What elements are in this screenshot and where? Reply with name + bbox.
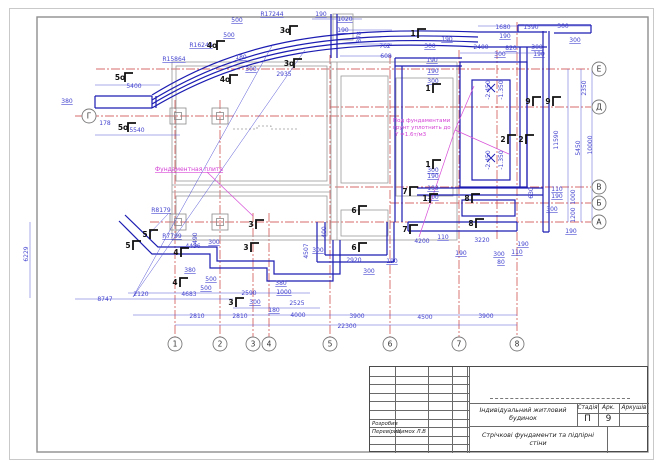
dimension-text: 300 <box>546 206 558 213</box>
section-mark-label: 2 <box>500 135 505 144</box>
dimension-text: 190 <box>427 68 439 75</box>
axis-bubble-label: 4 <box>267 340 272 349</box>
section-mark-label: 6 <box>351 206 356 215</box>
section-mark-flag <box>150 230 158 239</box>
dimension-text: 300 <box>312 247 324 254</box>
section-mark-flag <box>410 225 418 234</box>
section-mark-label: 3о <box>284 59 294 68</box>
dimension-text: 300 <box>531 44 543 51</box>
dimension-text: 300 <box>557 23 569 30</box>
axis-bubble-label: В <box>596 183 601 192</box>
dimension-text: 178 <box>99 120 111 127</box>
section-mark-label: 5о <box>118 123 128 132</box>
axis-bubble-label: 2 <box>218 340 223 349</box>
dimension-text: 190 <box>551 193 563 200</box>
axis-bubble-label: 3 <box>251 340 256 349</box>
dimension-text: 11590 <box>553 130 560 149</box>
dimension-text: 300 <box>494 51 506 58</box>
dimension-text: 300 <box>493 251 505 258</box>
dimension-text: -1.350 <box>498 80 505 100</box>
dimension-text: 190 <box>533 51 545 58</box>
section-mark-flag <box>553 97 561 106</box>
dimension-text: 110 <box>437 234 449 241</box>
dimension-text: R8179 <box>151 207 171 214</box>
dimension-text: 300 <box>245 66 257 73</box>
section-mark-label: 5 <box>125 241 130 250</box>
title-block: Розробив Перевірив Цимох Л.В Індивідуаль… <box>369 366 648 452</box>
soil-note-line1: Под фундаментами <box>393 118 451 124</box>
dimension-text: 2120 <box>133 291 148 298</box>
section-mark-label: 1 <box>425 160 430 169</box>
section-mark-label: 4 <box>173 248 178 257</box>
sheets-header: Аркушів <box>619 403 649 413</box>
section-mark-flag <box>290 26 298 35</box>
dimension-text: 380 <box>275 280 287 287</box>
section-mark-flag <box>433 84 441 93</box>
doc-title-line1: Стрічкові фундаменти та підпірні <box>482 432 594 439</box>
dimension-text: 190 <box>499 33 511 40</box>
stage-header: Стадія <box>577 403 598 413</box>
dimension-text: 22300 <box>337 323 356 330</box>
axis-bubble-label: Е <box>597 65 602 74</box>
dimension-text: 1200 <box>570 207 577 222</box>
section-mark-label: 3 <box>248 220 253 229</box>
section-mark-flag <box>359 243 367 252</box>
sheets-value <box>619 413 649 426</box>
dimension-text: 4436 <box>185 243 200 250</box>
dimension-text: 380 <box>184 267 196 274</box>
dimension-text: -2.450 <box>485 150 492 170</box>
axis-bubble-label: Б <box>596 199 601 208</box>
section-mark-flag <box>180 278 188 287</box>
section-mark-flag <box>410 187 418 196</box>
dimension-text: 3900 <box>478 313 493 320</box>
soil-note-line2: грунт уплотнить до <box>393 125 451 131</box>
dimension-text: 190 <box>427 185 439 192</box>
section-mark-flag <box>418 29 426 38</box>
dimension-text: R15864 <box>162 56 185 63</box>
dimension-text: 4507 <box>303 243 310 258</box>
dimension-text: R17244 <box>260 11 283 18</box>
doc-title: Стрічкові фундаменти та підпірні стіни <box>469 426 607 453</box>
dimension-text: 190 <box>386 258 398 265</box>
dimension-text: 1680 <box>495 24 510 31</box>
dimension-text: -1.350 <box>498 150 505 170</box>
dimension-text: 110 <box>511 249 523 256</box>
dimension-text: 500 <box>223 32 235 39</box>
section-mark-flag <box>476 219 484 228</box>
soil-note-line3: Y =1.6т/м3 <box>394 132 427 138</box>
section-mark-label: 2 <box>518 135 523 144</box>
dimension-text: 1000 <box>570 189 577 204</box>
dimension-text: 6229 <box>23 246 30 261</box>
dimension-text: 180 <box>235 54 247 61</box>
stage-value: П <box>577 413 598 426</box>
section-mark-label: 4о <box>207 41 217 50</box>
checked-name: Цимох Л.В <box>397 429 426 435</box>
section-mark-flag <box>251 243 259 252</box>
dimension-text: 110 <box>551 186 563 193</box>
dimension-text: 300 <box>427 194 439 201</box>
section-mark-label: 1 <box>410 29 415 38</box>
dimension-text: 878 <box>356 31 363 43</box>
dimension-text: 5400 <box>126 83 141 90</box>
slab-note: Фундаментная плита <box>155 166 223 173</box>
dimension-text: 190 <box>441 36 453 43</box>
section-mark-label: 1 <box>425 84 430 93</box>
project-title: Індивідуальний житловий будинок <box>469 403 577 426</box>
dimension-text: 1000 <box>276 289 291 296</box>
section-mark-flag <box>256 220 264 229</box>
dimension-text: 2810 <box>189 313 204 320</box>
section-mark-label: 4 <box>172 278 177 287</box>
dimension-text: 400 <box>321 226 328 238</box>
dimension-text: 8747 <box>97 296 112 303</box>
dimension-text: 2400 <box>473 44 488 51</box>
section-mark-flag <box>508 135 516 144</box>
dimension-text: 190 <box>315 11 327 18</box>
drawing-sheet: Фундаментная плита Под фундаментами грун… <box>0 0 662 468</box>
axis-bubble-label: 1 <box>173 340 178 349</box>
dimension-text: 820 <box>505 45 517 52</box>
dimension-text: 190 <box>517 241 529 248</box>
dimension-text: 180 <box>268 307 280 314</box>
dimension-text: 190 <box>455 250 467 257</box>
dimension-text: 2350 <box>581 80 588 95</box>
section-mark-flag <box>125 73 133 82</box>
section-mark-label: 5 <box>142 230 147 239</box>
dimension-text: 608 <box>380 53 392 60</box>
dimension-text: 300 <box>424 43 436 50</box>
section-mark-flag <box>236 298 244 307</box>
section-mark-flag <box>230 75 238 84</box>
dimension-lines <box>30 19 592 325</box>
axis-bubble-label: 8 <box>515 340 520 349</box>
section-mark-label: 9 <box>525 97 530 106</box>
dimension-text: 300 <box>569 37 581 44</box>
sheet-value: 9 <box>598 413 619 426</box>
doc-title-line2: стіни <box>529 440 546 447</box>
dimension-text: 500 <box>205 276 217 283</box>
dimension-text: 190 <box>565 228 577 235</box>
dimension-text: 300 <box>363 268 375 275</box>
axis-bubble-label: А <box>596 218 602 227</box>
dimension-text: 2920 <box>346 257 361 264</box>
dimension-text: 2525 <box>289 300 304 307</box>
section-mark-label: 8 <box>464 194 469 203</box>
dimension-text: 190 <box>337 27 349 34</box>
dimension-text: 500 <box>200 285 212 292</box>
dimension-text: 380 <box>61 98 73 105</box>
section-mark-label: 4о <box>220 75 230 84</box>
dimension-text: 630 <box>528 187 535 199</box>
developed-label: Розробив <box>372 421 398 427</box>
dimension-text: 4500 <box>417 314 432 321</box>
section-mark-label: 5о <box>115 73 125 82</box>
dimension-text: 1590 <box>523 24 538 31</box>
dimension-text: 300 <box>249 299 261 306</box>
sheet-header: Арк. <box>598 403 619 413</box>
dimension-text: 4683 <box>181 291 196 298</box>
dimension-text: 2935 <box>276 71 291 78</box>
section-mark-flag <box>359 206 367 215</box>
leader-lines-pink <box>207 86 509 237</box>
dimension-text: R7799 <box>162 233 182 240</box>
dimension-text: 80 <box>497 259 505 266</box>
section-mark-label: 9 <box>545 97 550 106</box>
dimension-text: -2.450 <box>485 80 492 100</box>
axis-grid-lines <box>75 22 591 337</box>
dimension-text: 10000 <box>587 135 594 154</box>
dimension-text: 2810 <box>232 313 247 320</box>
axis-bubble-label: 7 <box>457 340 462 349</box>
dimension-text: 500 <box>231 17 243 24</box>
dimension-text: 1020 <box>337 16 352 23</box>
dimension-text: 3900 <box>349 313 364 320</box>
axis-bubble-label: Г <box>87 112 92 121</box>
dimension-text: 762 <box>379 43 391 50</box>
axis-bubble-label: 6 <box>388 340 393 349</box>
designation-dash <box>490 398 630 399</box>
dimension-text: 4200 <box>414 238 429 245</box>
dimension-text: 5540 <box>129 127 144 134</box>
section-mark-flag <box>533 97 541 106</box>
dimension-texts: R17244500500R16244R158641901020190878762… <box>23 11 594 330</box>
section-mark-label: 3о <box>280 26 290 35</box>
section-mark-label: 7 <box>402 225 407 234</box>
section-mark-label: 3 <box>228 298 233 307</box>
dimension-text: 190 <box>427 173 439 180</box>
dimension-text: 300 <box>208 239 220 246</box>
dimension-text: 5450 <box>575 140 582 155</box>
axis-bubble-label: Д <box>596 103 602 112</box>
axis-bubble-label: 5 <box>328 340 333 349</box>
dimension-text: 2590 <box>241 290 256 297</box>
dimension-text: 3220 <box>474 237 489 244</box>
section-mark-label: 6 <box>351 243 356 252</box>
dimension-text: 4000 <box>290 312 305 319</box>
section-mark-label: 7 <box>402 187 407 196</box>
dimension-text: 190 <box>426 57 438 64</box>
section-mark-label: 1 <box>422 194 427 203</box>
section-mark-label: 3 <box>243 243 248 252</box>
section-mark-flag <box>217 41 225 50</box>
section-mark-label: 8 <box>468 219 473 228</box>
